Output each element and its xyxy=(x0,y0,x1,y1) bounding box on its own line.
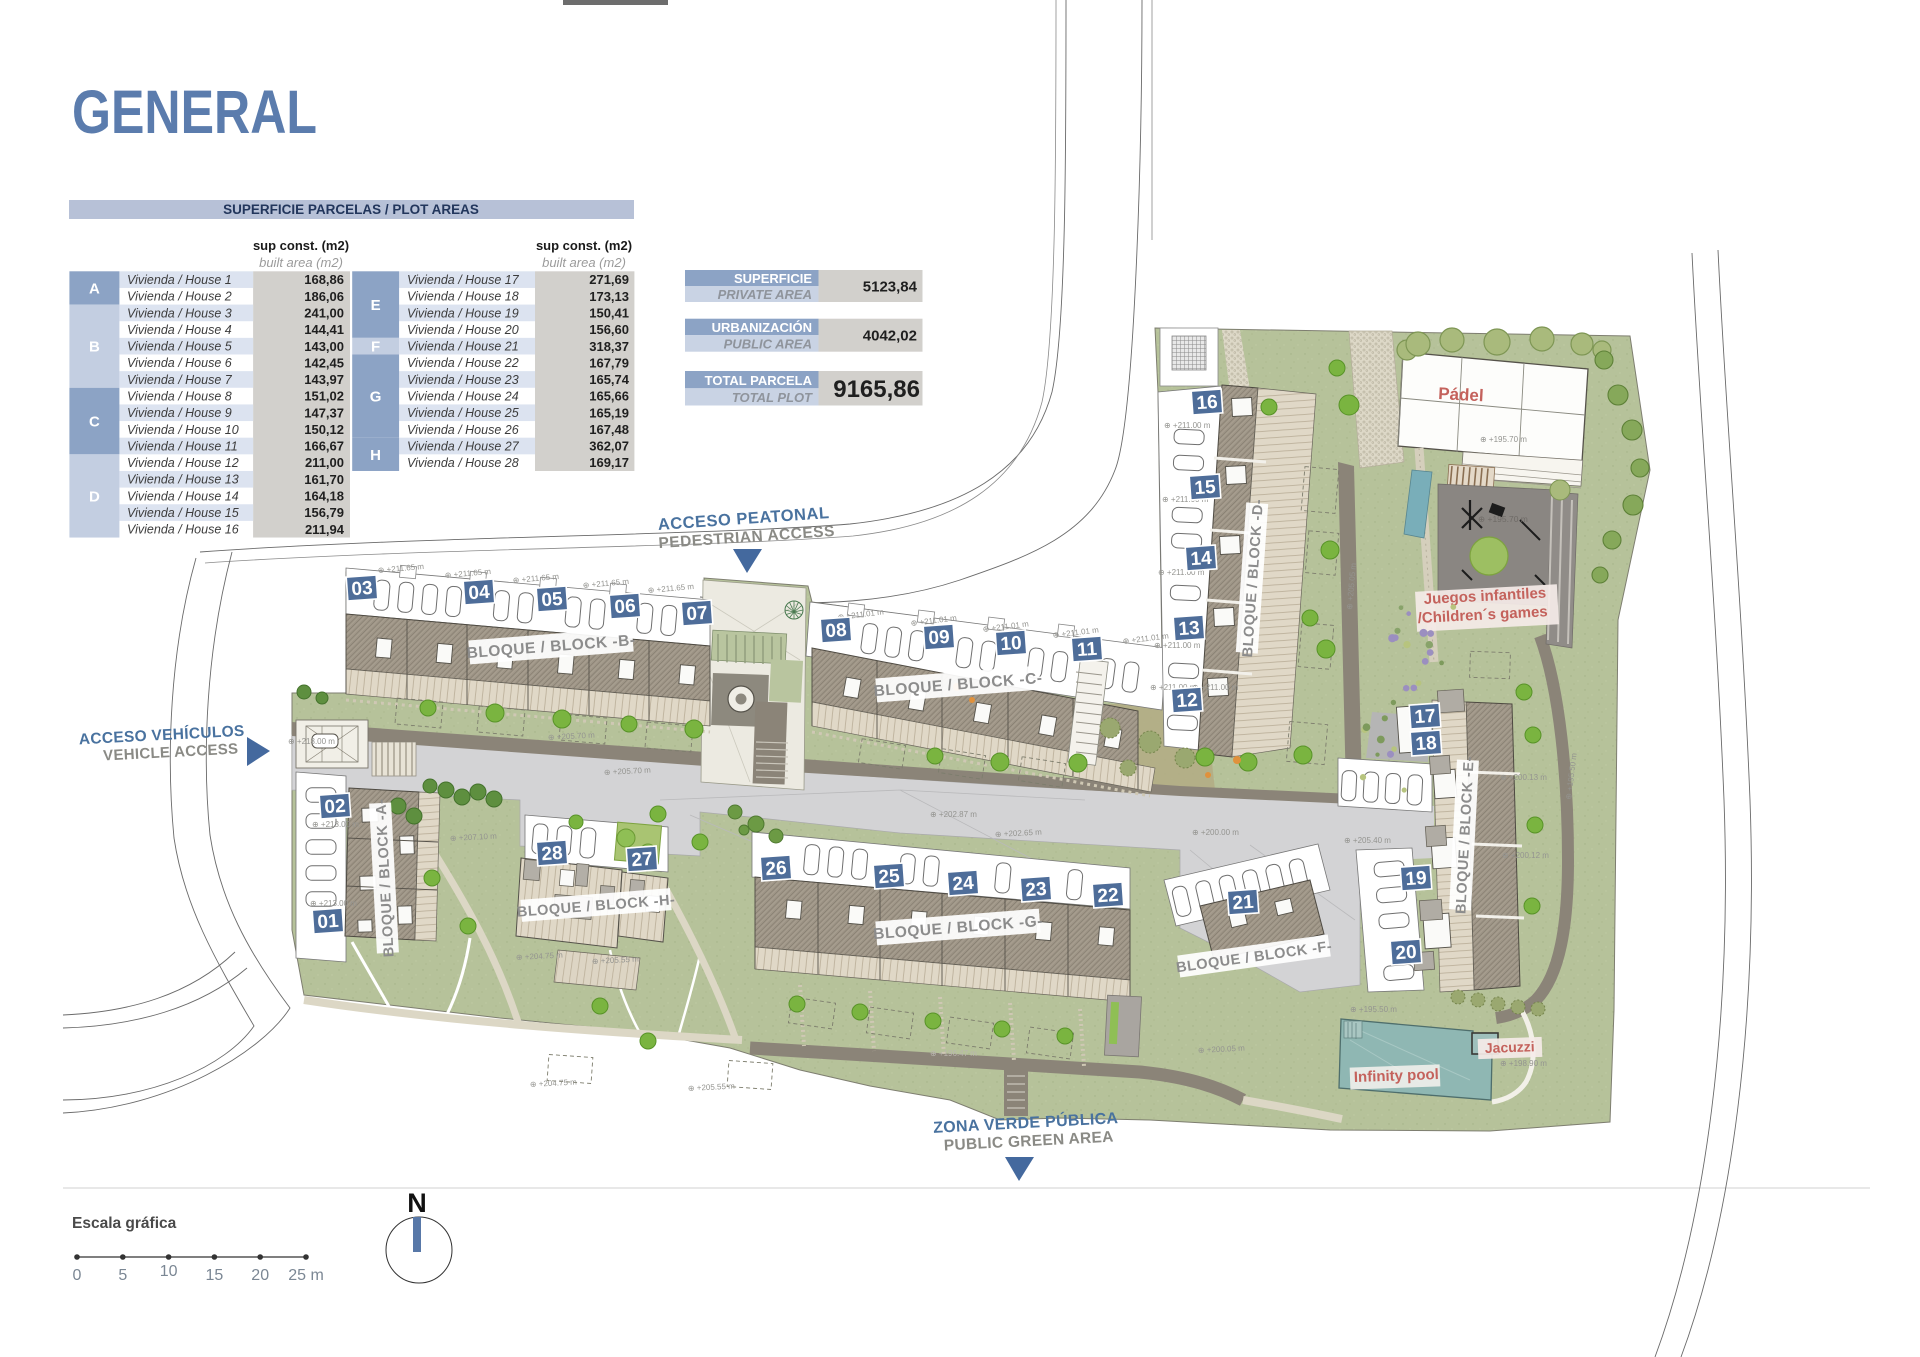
svg-text:Vivienda / House 3: Vivienda / House 3 xyxy=(127,306,232,320)
svg-text:Vivienda / House 9: Vivienda / House 9 xyxy=(127,406,232,420)
svg-text:G: G xyxy=(370,389,382,406)
svg-text:⊕ +211.00 m: ⊕ +211.00 m xyxy=(1164,421,1211,430)
svg-text:Vivienda / House 24: Vivienda / House 24 xyxy=(407,389,519,403)
svg-text:GENERAL: GENERAL xyxy=(72,78,317,146)
svg-text:D: D xyxy=(89,488,100,505)
svg-text:Vivienda / House 25: Vivienda / House 25 xyxy=(407,406,519,420)
svg-text:17: 17 xyxy=(1414,706,1437,728)
svg-text:4042,02: 4042,02 xyxy=(863,328,917,345)
svg-text:F: F xyxy=(371,339,380,356)
svg-text:SUPERFICIE: SUPERFICIE xyxy=(734,271,812,286)
svg-text:164,18: 164,18 xyxy=(304,489,344,504)
svg-text:⊕ +198.90 m: ⊕ +198.90 m xyxy=(1500,1059,1547,1068)
svg-text:⊕ +213.00 m: ⊕ +213.00 m xyxy=(310,899,357,908)
svg-text:TOTAL PARCELA: TOTAL PARCELA xyxy=(705,373,813,388)
svg-text:318,37: 318,37 xyxy=(589,339,629,354)
svg-text:16: 16 xyxy=(1196,392,1219,414)
svg-text:25: 25 xyxy=(878,866,901,888)
svg-text:Vivienda / House 7: Vivienda / House 7 xyxy=(127,373,233,387)
svg-text:Vivienda / House 26: Vivienda / House 26 xyxy=(407,423,519,437)
svg-text:147,37: 147,37 xyxy=(304,405,344,420)
svg-text:sup const. (m2): sup const. (m2) xyxy=(253,238,349,253)
svg-text:150,12: 150,12 xyxy=(304,422,344,437)
svg-text:5: 5 xyxy=(118,1267,127,1284)
svg-text:211,94: 211,94 xyxy=(305,522,345,537)
svg-text:5123,84: 5123,84 xyxy=(863,279,918,296)
svg-text:161,70: 161,70 xyxy=(304,472,344,487)
svg-text:C: C xyxy=(89,414,100,431)
svg-text:150,41: 150,41 xyxy=(589,305,629,320)
svg-text:362,07: 362,07 xyxy=(589,439,629,454)
svg-text:⊕ +196.47 m: ⊕ +196.47 m xyxy=(930,1049,977,1058)
svg-text:Vivienda / House 23: Vivienda / House 23 xyxy=(407,373,519,387)
svg-text:03: 03 xyxy=(351,578,374,600)
svg-text:0: 0 xyxy=(73,1267,82,1284)
svg-text:⊕ +202.87 m: ⊕ +202.87 m xyxy=(930,810,977,819)
svg-text:⊕ +195.70 m: ⊕ +195.70 m xyxy=(1478,514,1528,524)
svg-text:10: 10 xyxy=(1000,633,1023,655)
svg-text:11: 11 xyxy=(1076,639,1098,661)
svg-text:Vivienda / House 13: Vivienda / House 13 xyxy=(127,473,239,487)
svg-text:9165,86: 9165,86 xyxy=(833,376,920,403)
svg-text:168,86: 168,86 xyxy=(304,272,344,287)
svg-text:⊕ +200.00 m: ⊕ +200.00 m xyxy=(1192,828,1239,837)
svg-text:186,06: 186,06 xyxy=(304,289,344,304)
svg-text:09: 09 xyxy=(928,627,951,649)
svg-text:Vivienda / House 22: Vivienda / House 22 xyxy=(407,356,519,370)
svg-text:built area (m2): built area (m2) xyxy=(542,255,626,270)
svg-text:143,00: 143,00 xyxy=(304,339,344,354)
svg-text:165,19: 165,19 xyxy=(589,405,629,420)
svg-text:21: 21 xyxy=(1232,892,1255,914)
svg-text:Vivienda / House 19: Vivienda / House 19 xyxy=(407,306,519,320)
svg-text:05: 05 xyxy=(541,589,564,611)
svg-text:14: 14 xyxy=(1190,548,1213,570)
svg-text:173,13: 173,13 xyxy=(589,289,629,304)
svg-text:144,41: 144,41 xyxy=(304,322,344,337)
svg-text:Vivienda / House 10: Vivienda / House 10 xyxy=(127,423,239,437)
svg-text:Vivienda / House 16: Vivienda / House 16 xyxy=(127,523,239,537)
svg-text:27: 27 xyxy=(631,849,654,871)
svg-text:18: 18 xyxy=(1415,733,1438,755)
svg-text:Pádel: Pádel xyxy=(1438,384,1484,405)
svg-text:Vivienda / House 14: Vivienda / House 14 xyxy=(127,489,239,503)
svg-text:Vivienda / House 1: Vivienda / House 1 xyxy=(127,273,232,287)
svg-text:06: 06 xyxy=(614,596,637,618)
svg-text:211,00: 211,00 xyxy=(305,455,344,470)
svg-text:Escala gráfica: Escala gráfica xyxy=(72,1215,177,1232)
svg-text:15: 15 xyxy=(206,1267,224,1284)
svg-text:15: 15 xyxy=(1194,477,1217,499)
svg-text:20: 20 xyxy=(251,1267,269,1284)
svg-text:Vivienda / House 8: Vivienda / House 8 xyxy=(127,389,232,403)
svg-text:08: 08 xyxy=(825,620,848,642)
svg-text:B: B xyxy=(89,339,100,356)
svg-text:H: H xyxy=(370,447,381,464)
svg-text:built area (m2): built area (m2) xyxy=(259,255,343,270)
svg-text:Vivienda / House 12: Vivienda / House 12 xyxy=(127,456,239,470)
svg-text:N: N xyxy=(407,1188,427,1218)
svg-text:Vivienda / House 2: Vivienda / House 2 xyxy=(127,290,232,304)
svg-text:Vivienda / House 28: Vivienda / House 28 xyxy=(407,456,519,470)
svg-text:22: 22 xyxy=(1097,885,1120,907)
svg-text:sup const. (m2): sup const. (m2) xyxy=(536,238,632,253)
svg-text:⊕ +200.13 m: ⊕ +200.13 m xyxy=(1500,773,1547,782)
svg-text:241,00: 241,00 xyxy=(304,305,344,320)
svg-text:Jacuzzi: Jacuzzi xyxy=(1485,1038,1535,1056)
svg-text:165,74: 165,74 xyxy=(589,372,630,387)
svg-text:271,69: 271,69 xyxy=(589,272,629,287)
svg-text:169,17: 169,17 xyxy=(589,455,629,470)
svg-text:Vivienda / House 5: Vivienda / House 5 xyxy=(127,340,232,354)
svg-text:04: 04 xyxy=(468,582,491,604)
svg-text:Infinity pool: Infinity pool xyxy=(1354,1066,1440,1086)
svg-text:19: 19 xyxy=(1405,868,1428,890)
svg-text:Vivienda / House 27: Vivienda / House 27 xyxy=(407,439,520,453)
svg-text:⊕ +213.00 m: ⊕ +213.00 m xyxy=(288,737,335,746)
svg-text:PRIVATE AREA: PRIVATE AREA xyxy=(718,287,812,302)
svg-text:12: 12 xyxy=(1176,690,1199,712)
svg-text:⊕ +213.00 m: ⊕ +213.00 m xyxy=(312,820,359,829)
svg-text:Vivienda / House 18: Vivienda / House 18 xyxy=(407,290,519,304)
svg-text:24: 24 xyxy=(952,873,975,895)
svg-text:151,02: 151,02 xyxy=(304,389,344,404)
svg-text:01: 01 xyxy=(317,911,340,933)
svg-text:Vivienda / House 21: Vivienda / House 21 xyxy=(407,340,519,354)
svg-text:URBANIZACIÓN: URBANIZACIÓN xyxy=(712,320,812,335)
svg-text:PUBLIC AREA: PUBLIC AREA xyxy=(724,337,812,352)
svg-text:Vivienda / House 4: Vivienda / House 4 xyxy=(127,323,232,337)
svg-text:⊕ +195.50 m: ⊕ +195.50 m xyxy=(1350,1005,1397,1014)
svg-text:167,79: 167,79 xyxy=(589,355,629,370)
svg-text:⊕ +200.12 m: ⊕ +200.12 m xyxy=(1502,851,1549,860)
svg-text:20: 20 xyxy=(1395,942,1418,964)
svg-text:156,60: 156,60 xyxy=(589,322,629,337)
svg-text:165,66: 165,66 xyxy=(589,389,629,404)
svg-text:02: 02 xyxy=(324,796,347,818)
svg-text:Vivienda / House 20: Vivienda / House 20 xyxy=(407,323,519,337)
svg-text:23: 23 xyxy=(1025,879,1048,901)
svg-text:Vivienda / House 15: Vivienda / House 15 xyxy=(127,506,239,520)
svg-text:156,79: 156,79 xyxy=(304,505,344,520)
svg-text:E: E xyxy=(371,297,381,314)
svg-text:10: 10 xyxy=(160,1263,178,1280)
svg-text:Vivienda / House 11: Vivienda / House 11 xyxy=(127,439,238,453)
svg-text:Vivienda / House 6: Vivienda / House 6 xyxy=(127,356,232,370)
svg-text:13: 13 xyxy=(1178,618,1201,640)
svg-text:⊕ +205.40 m: ⊕ +205.40 m xyxy=(1344,836,1391,845)
svg-text:26: 26 xyxy=(765,858,788,880)
svg-text:SUPERFICIE PARCELAS / PLOT ARE: SUPERFICIE PARCELAS / PLOT AREAS xyxy=(223,202,479,217)
svg-text:25 m: 25 m xyxy=(288,1267,324,1284)
svg-text:166,67: 166,67 xyxy=(304,439,344,454)
svg-text:143,97: 143,97 xyxy=(304,372,344,387)
svg-text:142,45: 142,45 xyxy=(304,355,344,370)
svg-text:⊕ +195.70 m: ⊕ +195.70 m xyxy=(1480,435,1527,444)
svg-text:07: 07 xyxy=(686,603,709,625)
svg-text:Vivienda / House 17: Vivienda / House 17 xyxy=(407,273,520,287)
svg-text:167,48: 167,48 xyxy=(589,422,629,437)
svg-text:A: A xyxy=(89,280,100,297)
svg-text:28: 28 xyxy=(541,843,564,865)
svg-text:TOTAL PLOT: TOTAL PLOT xyxy=(732,390,813,405)
svg-text:⊕ +211.00 m: ⊕ +211.00 m xyxy=(1154,641,1201,650)
